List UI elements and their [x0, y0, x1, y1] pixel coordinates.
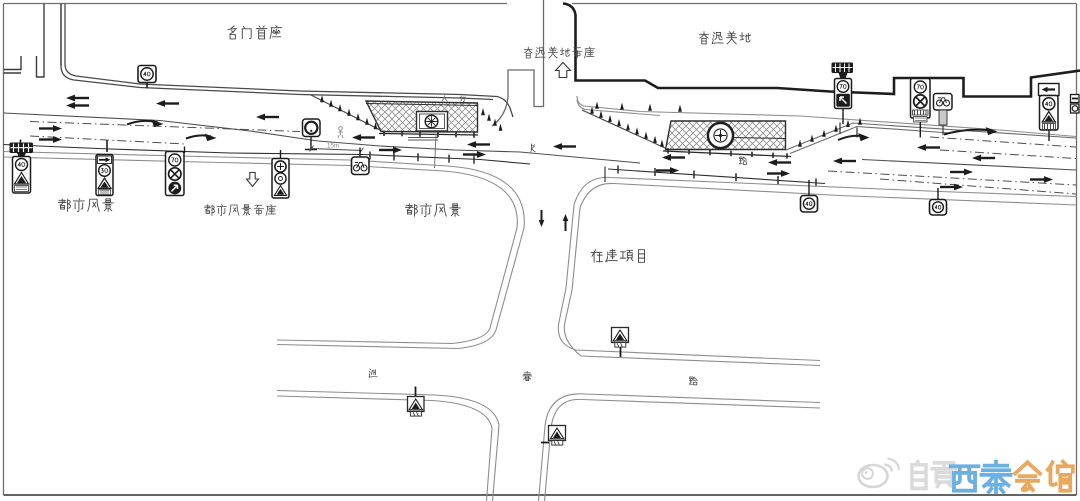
svg-text:15m: 15m: [327, 143, 339, 150]
